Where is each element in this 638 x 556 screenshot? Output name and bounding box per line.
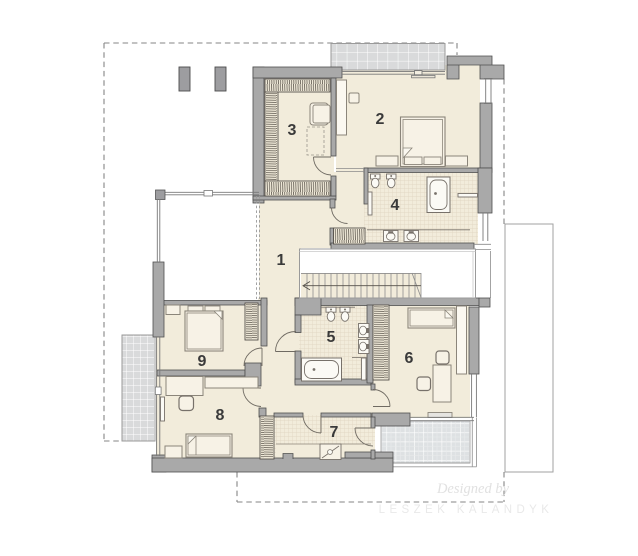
svg-text:2: 2 [376,111,385,128]
svg-text:9: 9 [198,353,207,370]
svg-text:5: 5 [327,329,336,346]
svg-text:6: 6 [405,350,414,367]
svg-text:3: 3 [288,122,297,139]
svg-text:Designed by: Designed by [436,481,510,497]
svg-text:LESZEK KALANDYK: LESZEK KALANDYK [379,504,554,516]
svg-text:4: 4 [391,197,400,214]
svg-text:7: 7 [330,424,339,441]
svg-text:1: 1 [277,252,286,269]
svg-text:8: 8 [216,407,225,424]
